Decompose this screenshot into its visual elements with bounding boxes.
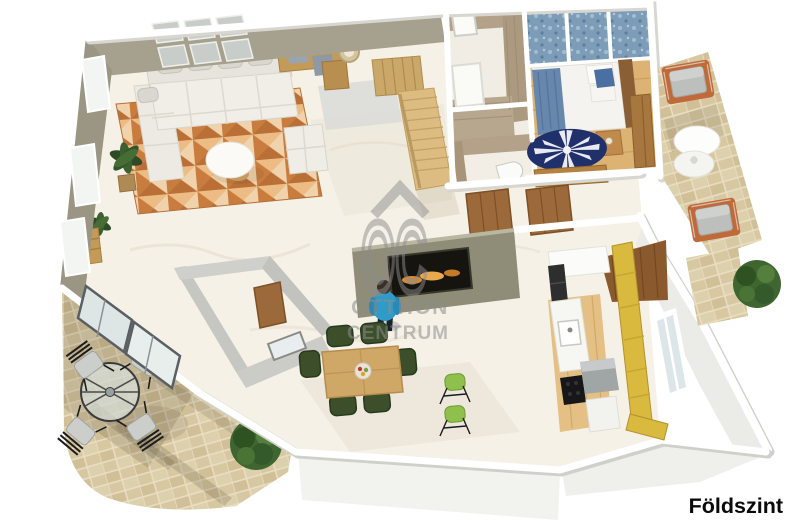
floor-label: Földszint [689,494,783,518]
floor-plan-canvas: OC OTTHON CENTRUM Földszint [0,0,800,523]
garden-bush [733,260,781,308]
shower-tray [452,63,484,107]
terrace-table-hub [106,388,115,397]
bedroom [524,4,658,187]
watermark-brand-line1: OTTHON [351,296,449,319]
fruit-bowl [355,363,371,379]
cooktop [560,375,586,405]
floor-plan-svg: OC OTTHON CENTRUM Földszint [0,0,800,523]
kitchen-sink [558,320,581,346]
armchair-pouf [284,124,328,174]
bathroom [448,7,530,144]
bathroom-skylight [452,14,477,36]
kitchen-base-cabinet [586,396,620,432]
watermark-brand-line2: CENTRUM [347,323,449,344]
double-bed [532,59,639,135]
entry-door [254,282,286,328]
